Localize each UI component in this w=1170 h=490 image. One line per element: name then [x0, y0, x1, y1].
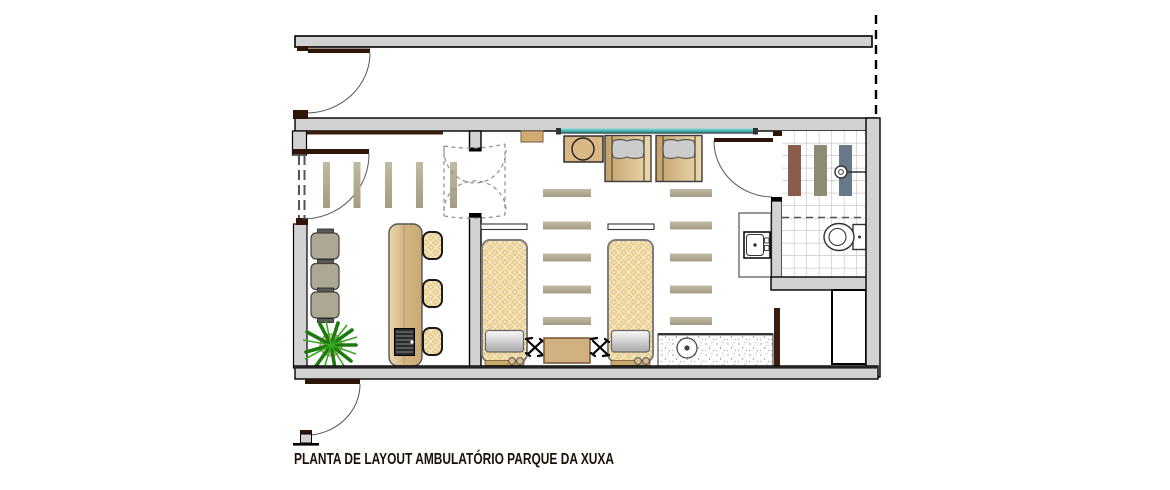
- svg-text:PLANTA DE LAYOUT AMBULATÓRIO P: PLANTA DE LAYOUT AMBULATÓRIO PARQUE DA X…: [294, 449, 614, 468]
